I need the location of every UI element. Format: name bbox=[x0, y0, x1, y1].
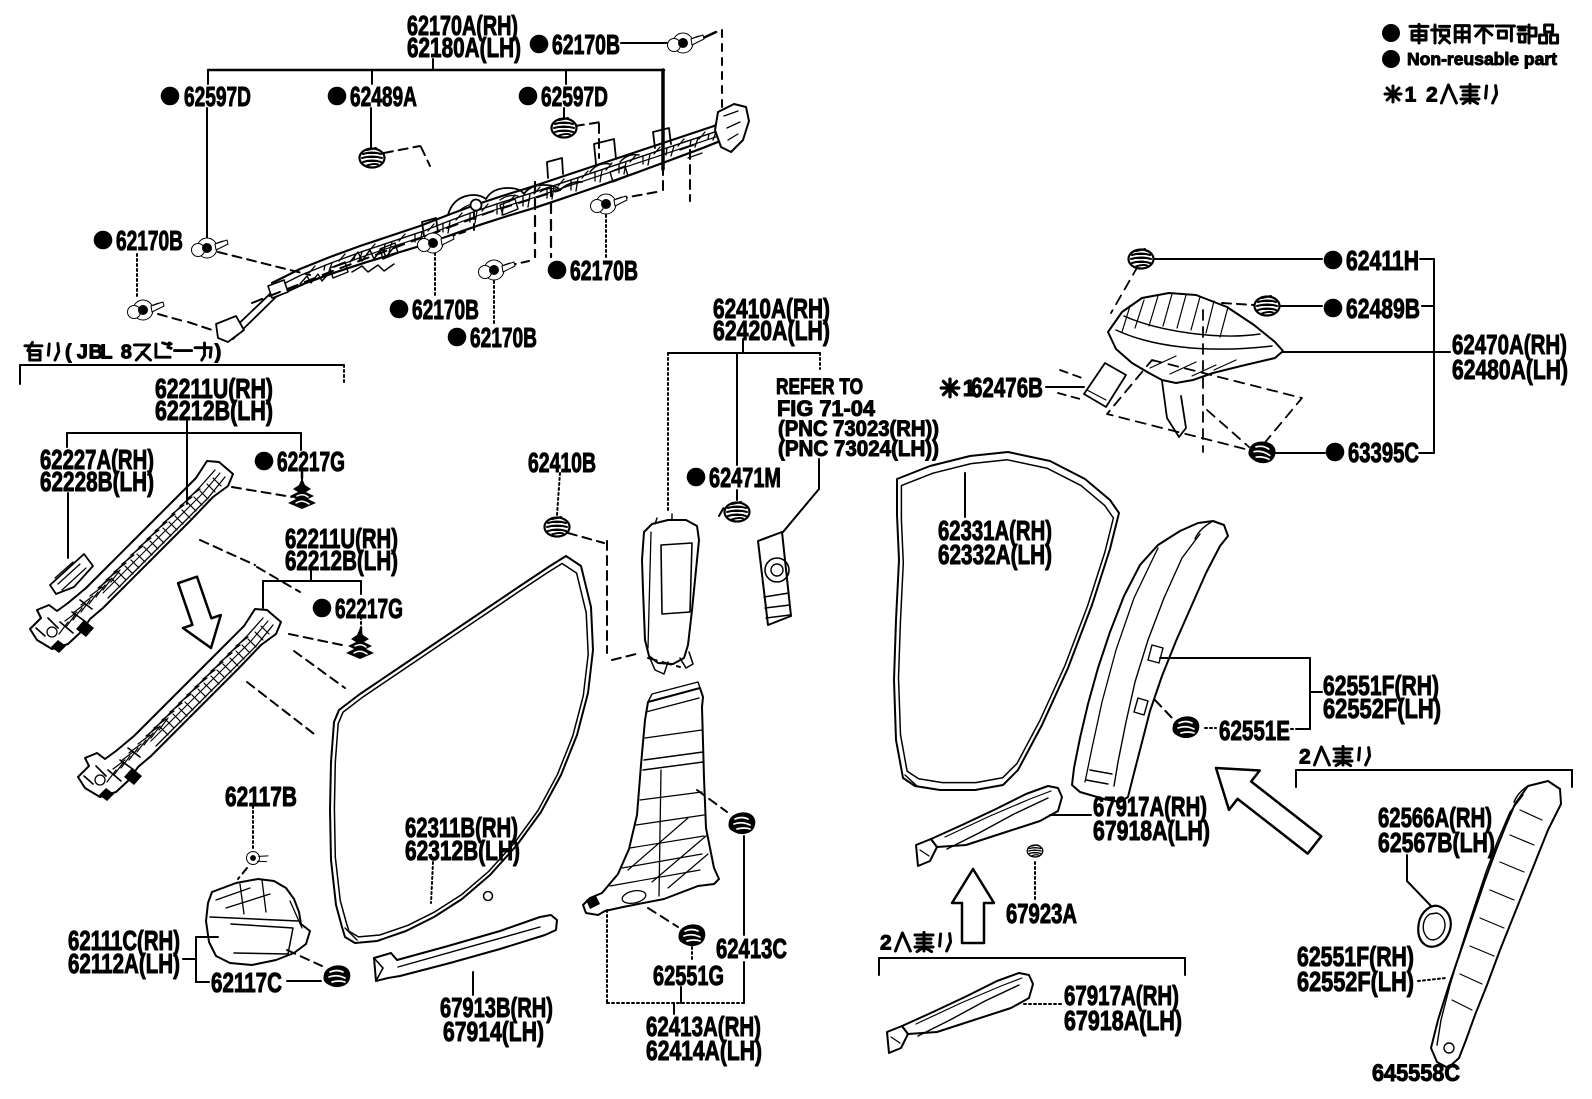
svg-text:62170B: 62170B bbox=[552, 29, 620, 60]
svg-text:62410B: 62410B bbox=[528, 447, 596, 478]
svg-text:645558C: 645558C bbox=[1372, 1060, 1460, 1087]
svg-text:62228B(LH): 62228B(LH) bbox=[40, 466, 154, 497]
svg-text:62332A(LH): 62332A(LH) bbox=[938, 539, 1052, 570]
svg-text:62413C: 62413C bbox=[716, 933, 787, 964]
svg-text:62170B: 62170B bbox=[116, 225, 183, 256]
svg-text:62489A: 62489A bbox=[350, 81, 417, 112]
svg-text:62170B: 62170B bbox=[412, 294, 479, 325]
svg-text:L: L bbox=[100, 342, 112, 364]
svg-text:62117C: 62117C bbox=[211, 967, 282, 998]
svg-text:(: ( bbox=[65, 342, 72, 364]
svg-text:62217G: 62217G bbox=[335, 593, 403, 624]
svg-text:2: 2 bbox=[880, 931, 892, 954]
svg-text:62489B: 62489B bbox=[1346, 293, 1420, 324]
svg-text:62597D: 62597D bbox=[184, 81, 251, 112]
svg-text:62476B: 62476B bbox=[971, 372, 1043, 403]
svg-text:67914(LH): 67914(LH) bbox=[443, 1016, 544, 1047]
svg-text:62597D: 62597D bbox=[541, 81, 608, 112]
svg-text:62471M: 62471M bbox=[709, 462, 781, 493]
svg-text:62411H: 62411H bbox=[1346, 245, 1419, 276]
svg-text:62117B: 62117B bbox=[225, 781, 297, 812]
svg-text:63395C: 63395C bbox=[1348, 437, 1419, 468]
svg-text:62170B: 62170B bbox=[570, 255, 638, 286]
svg-text:2: 2 bbox=[1299, 745, 1311, 768]
svg-text:62480A(LH): 62480A(LH) bbox=[1452, 354, 1568, 385]
svg-text:67923A: 67923A bbox=[1006, 898, 1077, 929]
svg-text:62180A(LH): 62180A(LH) bbox=[407, 32, 521, 63]
svg-text:62312B(LH): 62312B(LH) bbox=[405, 835, 520, 866]
svg-text:1: 1 bbox=[1405, 83, 1417, 106]
svg-text:67918A(LH): 67918A(LH) bbox=[1093, 815, 1210, 846]
svg-text:2: 2 bbox=[1426, 83, 1438, 106]
svg-text:62170B: 62170B bbox=[470, 322, 537, 353]
svg-text:62552F(LH): 62552F(LH) bbox=[1297, 966, 1414, 997]
svg-text:8: 8 bbox=[121, 342, 132, 364]
svg-text:62567B(LH): 62567B(LH) bbox=[1378, 827, 1495, 858]
svg-text:62551E: 62551E bbox=[1219, 715, 1290, 746]
svg-text:(PNC 73024(LH)): (PNC 73024(LH)) bbox=[778, 436, 939, 461]
svg-text:62217G: 62217G bbox=[277, 446, 345, 477]
svg-text:62414A(LH): 62414A(LH) bbox=[646, 1035, 762, 1066]
svg-text:): ) bbox=[215, 342, 222, 364]
svg-text:Non-reusable part: Non-reusable part bbox=[1407, 49, 1557, 69]
svg-text:62112A(LH): 62112A(LH) bbox=[68, 948, 180, 979]
svg-text:62552F(LH): 62552F(LH) bbox=[1323, 693, 1441, 724]
svg-text:62212B(LH): 62212B(LH) bbox=[285, 545, 398, 576]
svg-text:67918A(LH): 67918A(LH) bbox=[1064, 1005, 1182, 1036]
svg-text:62212B(LH): 62212B(LH) bbox=[155, 395, 273, 426]
svg-text:62420A(LH): 62420A(LH) bbox=[713, 315, 830, 346]
svg-text:62551G: 62551G bbox=[653, 960, 724, 991]
svg-text:J: J bbox=[77, 342, 88, 364]
